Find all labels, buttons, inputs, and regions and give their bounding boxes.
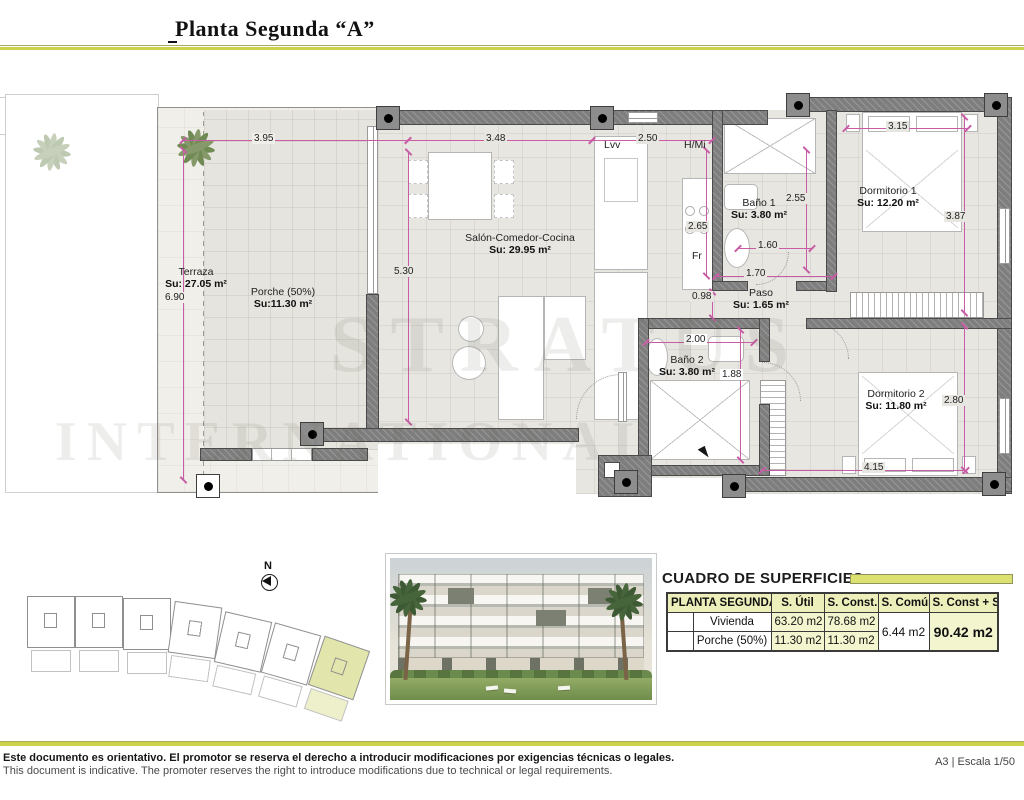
column-marker [786,93,810,117]
col-header-comun: S. Común [878,593,929,613]
dim-label: 5.30 [392,266,415,277]
kitchen-counter [682,178,713,290]
wall [638,318,770,329]
col-header-group: PLANTA SEGUNDA [667,593,771,613]
appliance-label-hob: H/Mi [684,139,706,151]
dimension-line [716,276,834,277]
wall [303,428,579,442]
porch-boundary-dashed [203,112,204,486]
sofa [498,296,544,420]
room-name: Baño 1 [726,197,792,209]
col-header-util: S. Útil [771,593,824,613]
comun-value: 6.44 m2 [878,613,929,652]
spacer-cell [667,632,693,652]
room-area: Su:11.30 m² [237,298,329,310]
room-area: Su: 11.80 m² [846,400,946,412]
room-name: Terraza [151,266,241,278]
dim-label: 0.98 [690,291,713,302]
room-label-dormitorio1: Dormitorio 1 Su: 12.20 m² [838,185,938,209]
room-name: Dormitorio 1 [838,185,938,197]
room-area: Su: 12.20 m² [838,197,938,209]
dim-label: 3.15 [886,121,909,132]
render-balcony-shadow [536,610,566,626]
column-marker [590,106,614,130]
row-util: 63.20 m2 [771,613,824,632]
surfaces-table: PLANTA SEGUNDA S. Útil S. Const. S. Comú… [666,592,999,652]
window [999,208,1010,264]
dimension-line [408,152,409,422]
chair [408,160,428,184]
chair [408,194,428,218]
column-marker [614,470,638,494]
site-building-highlighted [309,637,369,699]
coffee-table [452,346,486,380]
north-label: N [264,560,272,572]
wall [726,477,1012,492]
wall [376,110,768,125]
dim-label: 2.65 [686,221,709,232]
column-marker [984,93,1008,117]
room-area: Su: 3.80 m² [726,209,792,221]
room-label-dormitorio2: Dormitorio 2 Su: 11.80 m² [846,388,946,412]
scale-label: A3 | Escala 1/50 [905,756,1015,768]
dimension-line [183,140,408,141]
render-sun-lounger [558,686,570,691]
nightstand [842,456,856,474]
room-area: Su: 27.05 m² [151,278,241,290]
surfaces-title-bar [850,574,1013,584]
col-header-const: S. Const. [824,593,878,613]
site-building [215,612,271,671]
dim-label: 6.90 [163,292,186,303]
room-label-salon: Salón-Comedor-Cocina Su: 29.95 m² [452,232,588,256]
title-underscore [168,41,177,43]
dim-label: 1.60 [756,240,779,251]
table-row: Vivienda 63.20 m2 78.68 m2 6.44 m2 90.42… [667,613,998,632]
dimension-line [183,150,184,480]
column-marker [300,422,324,446]
room-name: Paso [726,287,796,299]
dim-label: 2.00 [684,334,707,345]
room-label-bano1: Baño 1 Su: 3.80 m² [726,197,792,221]
col-header-total: S. Const + S.C [929,593,998,613]
disclaimer-en: This document is indicative. The promote… [3,765,612,777]
dimension-line [706,150,707,276]
room-label-porche: Porche (50%) Su:11.30 m² [237,286,329,310]
dimension-line [806,150,807,270]
window [628,112,658,123]
porch-steps [252,448,312,461]
room-area: Su: 29.95 m² [452,244,588,256]
exterior-cutout [378,444,576,494]
hob-burner-icon [685,206,695,216]
room-name: Dormitorio 2 [846,388,946,400]
column-marker [982,472,1006,496]
room-area: Su: 1.65 m² [726,299,796,311]
render-lawn [390,678,652,700]
spacer-cell [667,613,693,632]
dim-label: 4.15 [862,462,885,473]
hob-burner-icon [699,206,709,216]
window [999,398,1010,454]
appliance-label-fridge: Fr [692,250,702,262]
building-render-image [386,554,656,704]
nightstand [846,114,860,132]
table-header-row: PLANTA SEGUNDA S. Útil S. Const. S. Comú… [667,593,998,613]
row-util: 11.30 m2 [771,632,824,652]
floor-plan-sheet: Planta Segunda “A” [0,0,1024,800]
room-area: Su: 3.80 m² [652,366,722,378]
header-rule-accent [0,47,1024,50]
row-name: Porche (50%) [693,632,771,652]
sofa-chaise [544,296,586,360]
header-rule-thin [0,45,1024,46]
appliance-label-dishwasher: Lvv [604,139,620,151]
column-marker [376,106,400,130]
door-leaf [618,372,627,422]
disclaimer-es: Este documento es orientativo. El promot… [3,752,674,764]
wall [638,465,770,476]
room-name: Salón-Comedor-Cocina [452,232,588,244]
wall [759,404,770,476]
dim-label: 3.87 [944,211,967,222]
surfaces-table-title: CUADRO DE SUPERFICIES [662,570,863,587]
dim-label: 3.48 [484,133,507,144]
chair [494,160,514,184]
render-balcony-shadow [448,588,474,604]
column-marker [722,474,746,498]
render-building [398,574,644,658]
row-const: 11.30 m2 [824,632,878,652]
wall [366,294,379,442]
dim-label: 1.88 [720,369,743,380]
row-const: 78.68 m2 [824,613,878,632]
column-marker [196,474,220,498]
footer-rule-accent [0,742,1024,746]
room-name: Baño 2 [652,354,722,366]
north-arrow-icon [261,574,278,591]
wall [806,318,1012,329]
wall [312,448,368,461]
kitchen-counter [594,136,648,270]
sliding-door [367,126,378,294]
page-title: Planta Segunda “A” [175,16,375,42]
site-building [124,599,170,649]
wall [200,448,252,461]
site-plan [20,585,372,725]
room-label-bano2: Baño 2 Su: 3.80 m² [652,354,722,378]
room-label-terraza: Terraza Su: 27.05 m² [151,266,241,290]
dimension-line [740,330,741,460]
site-building [28,597,74,647]
neighbor-terrace [6,95,158,492]
room-label-paso: Paso Su: 1.65 m² [726,287,796,311]
pillow [916,116,958,132]
site-building [169,602,222,658]
wall [759,318,770,362]
total-value: 90.42 m2 [929,613,998,652]
room-name: Porche (50%) [237,286,329,298]
dim-label: 3.95 [252,133,275,144]
dining-table [428,152,492,220]
row-name: Vivienda [693,613,771,632]
site-building [76,597,122,647]
coffee-table [458,316,484,342]
kitchen-sink [604,158,638,202]
wall [786,97,1012,112]
chair [494,194,514,218]
dim-label: 2.50 [636,133,659,144]
dim-label: 1.70 [744,268,767,279]
wall [826,110,837,292]
